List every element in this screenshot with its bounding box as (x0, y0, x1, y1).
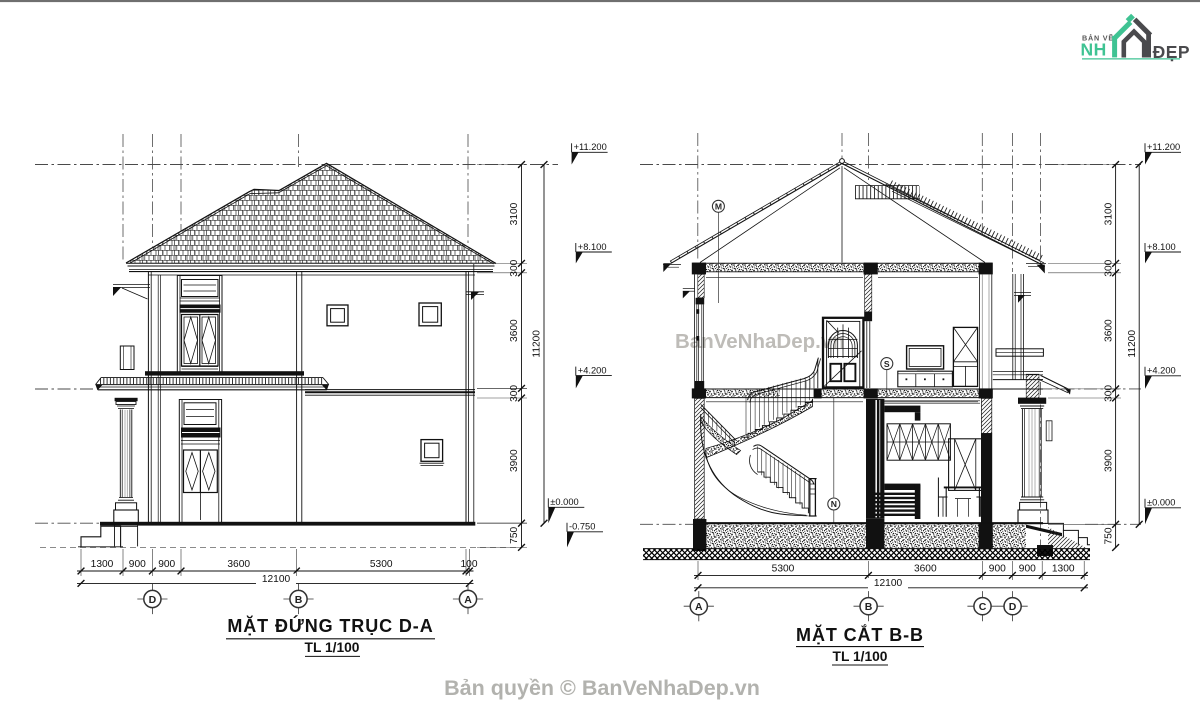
svg-text:C: C (979, 601, 987, 613)
svg-text:+8.100: +8.100 (1147, 242, 1176, 252)
svg-text:11200: 11200 (532, 330, 543, 358)
svg-text:±0.000: ±0.000 (1147, 498, 1175, 508)
svg-text:5300: 5300 (370, 559, 393, 570)
svg-text:D: D (149, 594, 157, 606)
svg-text:MẶT CẮT B-B: MẶT CẮT B-B (796, 624, 924, 645)
svg-text:+4.200: +4.200 (1147, 366, 1176, 376)
svg-text:3600: 3600 (914, 564, 937, 575)
svg-text:BanVeNhaDep.vn: BanVeNhaDep.vn (675, 330, 845, 353)
svg-text:300: 300 (1103, 385, 1114, 402)
svg-text:750: 750 (1103, 527, 1114, 544)
svg-text:+8.100: +8.100 (578, 242, 607, 252)
svg-text:900: 900 (129, 559, 146, 570)
svg-text:NH: NH (1081, 40, 1107, 60)
svg-text:3600: 3600 (1103, 319, 1114, 342)
svg-text:-0.750: -0.750 (569, 522, 595, 532)
svg-text:+4.200: +4.200 (578, 365, 607, 375)
svg-text:900: 900 (158, 559, 175, 570)
svg-text:±0.000: ±0.000 (550, 497, 578, 507)
svg-text:900: 900 (989, 564, 1006, 575)
svg-text:3100: 3100 (509, 202, 520, 225)
svg-text:300: 300 (1103, 259, 1114, 276)
svg-text:1300: 1300 (91, 559, 114, 570)
svg-text:N: N (831, 499, 837, 509)
svg-text:TL 1/100: TL 1/100 (305, 640, 360, 655)
svg-text:300: 300 (509, 385, 520, 402)
svg-text:300: 300 (509, 259, 520, 276)
svg-text:S: S (884, 359, 890, 369)
svg-text:B: B (865, 601, 873, 613)
svg-text:3600: 3600 (509, 319, 520, 342)
svg-text:900: 900 (1019, 564, 1036, 575)
svg-text:12100: 12100 (874, 578, 903, 589)
svg-text:3100: 3100 (1103, 202, 1114, 225)
svg-text:3600: 3600 (227, 559, 250, 570)
svg-text:750: 750 (509, 526, 520, 543)
svg-text:3900: 3900 (1103, 449, 1114, 472)
svg-text:1300: 1300 (1052, 564, 1075, 575)
svg-text:+11.200: +11.200 (574, 142, 607, 152)
svg-text:A: A (464, 594, 472, 606)
svg-text:MẶT ĐỨNG TRỤC D-A: MẶT ĐỨNG TRỤC D-A (227, 615, 433, 636)
svg-text:B: B (295, 594, 303, 606)
svg-text:100: 100 (461, 559, 478, 570)
svg-text:11200: 11200 (1127, 330, 1138, 358)
svg-text:A: A (695, 601, 703, 613)
svg-text:M: M (715, 202, 722, 212)
svg-text:5300: 5300 (772, 564, 795, 575)
svg-text:D: D (1009, 601, 1017, 613)
svg-text:+11.200: +11.200 (1147, 142, 1180, 152)
svg-text:Bản quyền © BanVeNhaDep.vn: Bản quyền © BanVeNhaDep.vn (444, 676, 760, 700)
svg-text:TL 1/100: TL 1/100 (833, 649, 888, 664)
svg-text:12100: 12100 (262, 574, 291, 585)
svg-text:3900: 3900 (509, 449, 520, 472)
